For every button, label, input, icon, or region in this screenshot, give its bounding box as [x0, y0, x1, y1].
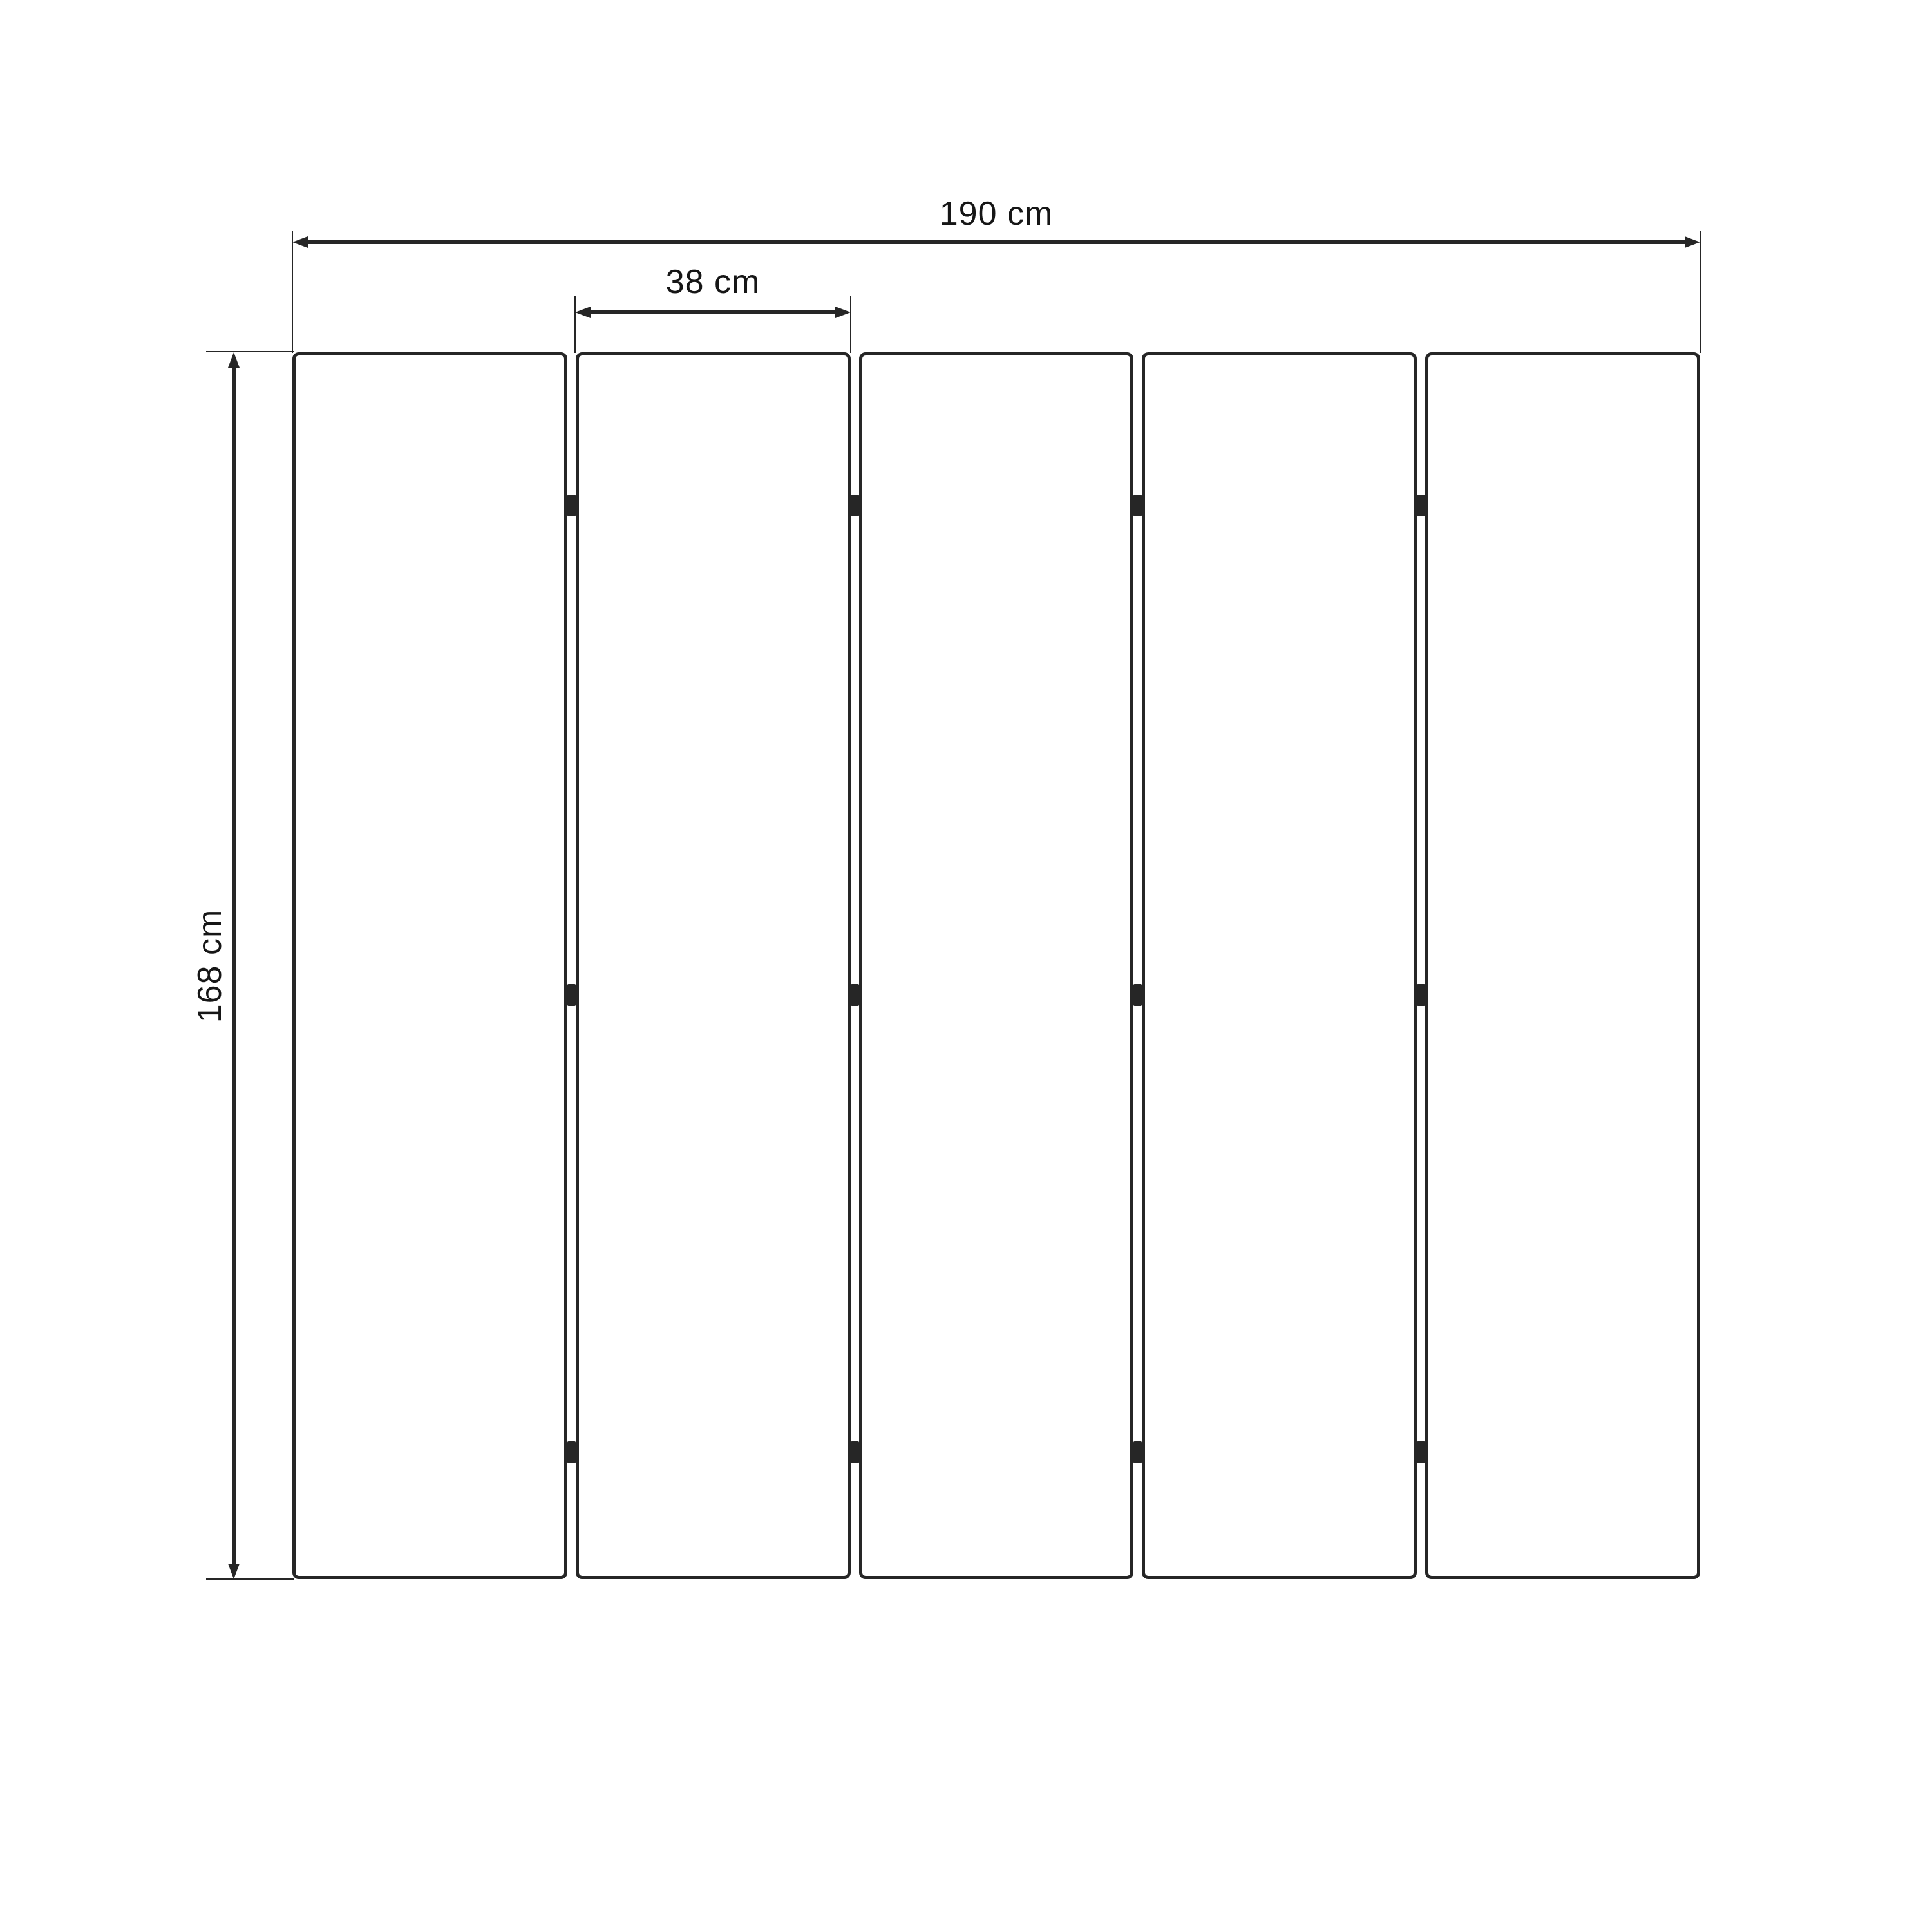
height-dimension-line: [232, 365, 236, 1566]
screen-panel-5: [1425, 352, 1700, 1579]
hinge-icon: [567, 495, 576, 516]
hinge-icon: [567, 1441, 576, 1463]
folding-screen-diagram: 190 cm 38 cm 168 cm: [0, 0, 1932, 1932]
arrowhead-down-icon: [228, 1564, 240, 1579]
extension-line-right: [1700, 231, 1701, 353]
arrowhead-right-icon: [1685, 236, 1700, 248]
hinge-icon: [1133, 984, 1142, 1006]
screen-panel-2: [576, 352, 851, 1579]
extension-line-top: [206, 351, 294, 352]
extension-line-bottom: [206, 1578, 294, 1580]
total-width-dimension-line: [304, 240, 1689, 244]
screen-panel-3: [859, 352, 1134, 1579]
total-width-label: 190 cm: [292, 197, 1700, 231]
arrowhead-left-icon: [575, 307, 591, 318]
hinge-icon: [851, 984, 859, 1006]
arrowhead-up-icon: [228, 352, 240, 368]
hinge-icon: [1417, 984, 1425, 1006]
height-label: 168 cm: [193, 869, 227, 1063]
extension-line-left: [292, 231, 293, 353]
hinge-icon: [1417, 1441, 1425, 1463]
hinge-icon: [567, 984, 576, 1006]
hinge-icon: [1417, 495, 1425, 516]
extension-line-left: [574, 296, 576, 353]
arrowhead-right-icon: [835, 307, 851, 318]
panel-group: [292, 352, 1700, 1579]
hinge-icon: [1133, 495, 1142, 516]
screen-panel-1: [292, 352, 567, 1579]
hinge-icon: [851, 1441, 859, 1463]
screen-panel-4: [1142, 352, 1417, 1579]
hinge-icon: [1133, 1441, 1142, 1463]
panel-width-dimension-line: [587, 310, 838, 314]
arrowhead-left-icon: [292, 236, 308, 248]
hinge-icon: [851, 495, 859, 516]
extension-line-right: [850, 296, 851, 353]
panel-width-label: 38 cm: [575, 265, 851, 299]
